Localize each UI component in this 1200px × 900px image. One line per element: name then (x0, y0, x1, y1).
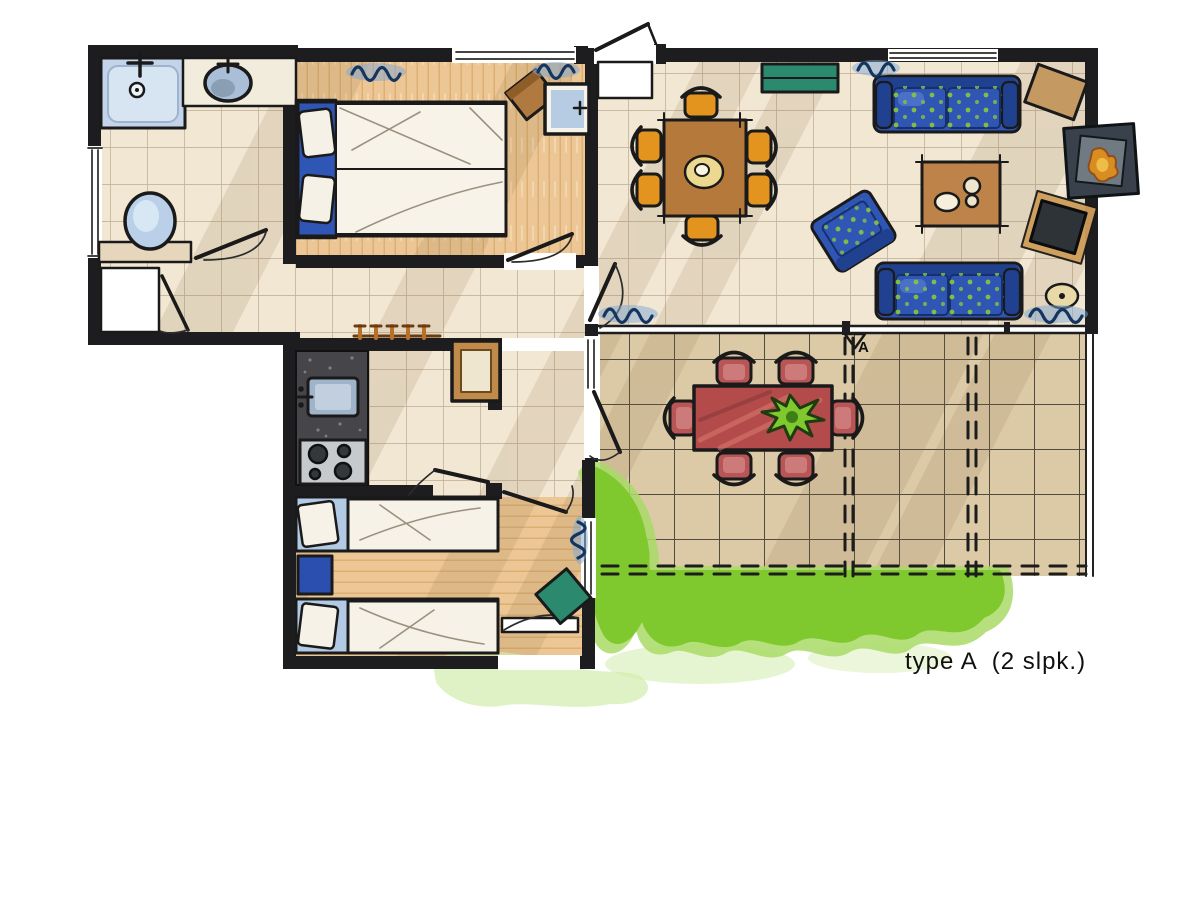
dining-chair (683, 216, 721, 245)
nightstand (298, 556, 332, 594)
fireplace (1064, 124, 1139, 199)
kitchen (296, 351, 368, 485)
single-bed-bottom (296, 599, 498, 653)
garden-chair (776, 353, 816, 385)
plan-type-label: type A (2 slpk.) (905, 648, 1086, 675)
sofa-top (874, 76, 1020, 132)
section-marker-label: A (858, 339, 869, 356)
shower (101, 52, 185, 128)
window-living-top (888, 49, 998, 61)
floor-plan: A (0, 0, 1200, 900)
sofa-bottom (876, 263, 1022, 319)
garden-chair (831, 398, 863, 438)
sink (298, 378, 358, 416)
dining-chair (632, 171, 661, 209)
single-bed-top (296, 497, 498, 551)
washstand (545, 84, 589, 134)
dining-chair (747, 171, 776, 209)
garden-chair (776, 453, 816, 485)
dining-table (658, 113, 752, 223)
dining-chair (747, 128, 776, 166)
entrance-door (594, 24, 656, 98)
garden-chair (714, 453, 754, 485)
storage-closet (101, 268, 159, 332)
garden-chair (714, 353, 754, 385)
rug (1046, 284, 1078, 308)
dining-chair (682, 88, 720, 117)
curtain-living-bottom-left (598, 305, 658, 323)
wall-table (452, 341, 500, 401)
stove (300, 440, 366, 484)
dining-chair (632, 127, 661, 165)
coffee-table (916, 155, 1008, 233)
garden-chair (665, 398, 697, 438)
double-bed (296, 100, 506, 238)
curtain-bedroom1-left (346, 63, 406, 81)
window-bedroom1-top (452, 47, 576, 63)
curtain-living-bottom-right (1024, 305, 1088, 323)
sideboard (762, 64, 838, 92)
washbasin-counter (183, 58, 296, 106)
window-hall-terrace (584, 336, 599, 392)
